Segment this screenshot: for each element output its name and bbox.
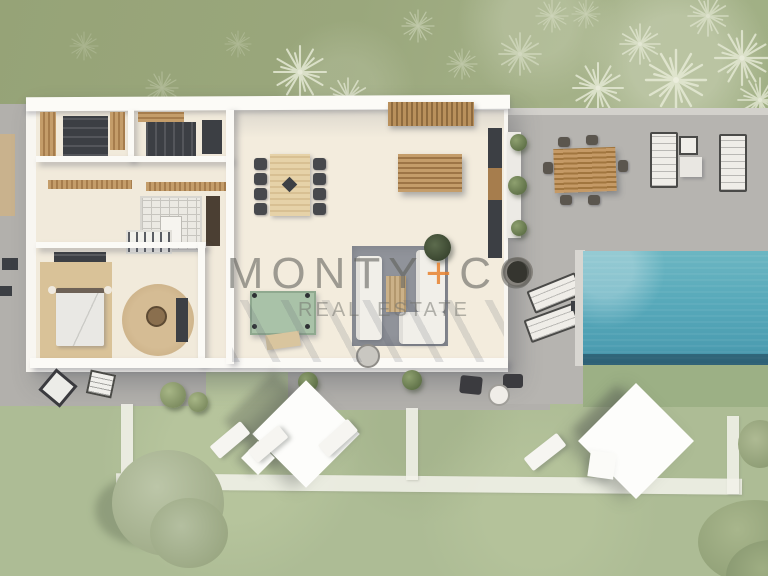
walkway-tree: [188, 392, 208, 412]
kitchen-island: [398, 154, 462, 192]
glass-wall-shadows: [232, 300, 504, 362]
dining-chair: [254, 188, 267, 200]
dining-chair: [313, 158, 326, 170]
garden-path-vertical: [727, 416, 739, 494]
bed-guest-1: [63, 116, 108, 156]
bed-master: [56, 288, 104, 346]
closet-topleft: [40, 112, 56, 160]
pool-deep-edge: [583, 354, 768, 365]
outdoor-chair: [558, 137, 570, 147]
terrace-bush: [508, 176, 527, 195]
dining-chair: [254, 158, 267, 170]
billiard-pocket: [252, 293, 257, 298]
wall-bedrooms-south: [36, 156, 232, 162]
outdoor-chair: [586, 135, 598, 145]
walkway-tree: [160, 382, 186, 408]
driveway-bench: [2, 258, 18, 270]
outdoor-chair: [588, 195, 600, 205]
swimming-pool: [583, 251, 768, 365]
dining-chair: [254, 203, 267, 215]
sun-lounger-terrace: [650, 132, 678, 188]
driveway-bench-2: [0, 286, 12, 296]
nightstand-right: [104, 286, 112, 294]
sun-lounger-terrace: [719, 134, 747, 192]
desk-office: [176, 298, 188, 342]
aerial-villa-floorplan: MONTY+CO REAL ESTATE: [0, 0, 768, 576]
side-table-small: [679, 136, 698, 155]
terrace-round-table: [488, 384, 510, 406]
wardrobe-guest-1: [110, 112, 125, 150]
terrace-top-edge: [503, 108, 768, 115]
side-table-square: [680, 157, 702, 177]
wall-bedrooms-divider: [128, 110, 134, 160]
garden-path-vertical: [406, 408, 418, 480]
driveway-rug: [0, 134, 15, 216]
lounge-chair-dark: [459, 375, 483, 395]
pergola: [388, 102, 474, 126]
billiard-pocket: [305, 293, 310, 298]
hall-console-2: [146, 182, 230, 191]
shade-sail-tail: [587, 450, 616, 479]
patio-chair-square: [86, 370, 116, 399]
garden-tree-large-lobe: [150, 498, 228, 568]
indoor-plant: [424, 234, 451, 261]
wardrobe-guest-2: [202, 120, 222, 154]
outdoor-chair: [618, 160, 628, 172]
wall-master-east: [198, 242, 205, 364]
fire-pit: [503, 257, 533, 287]
chair-office: [146, 306, 167, 327]
bed-guest-2: [146, 122, 196, 156]
dining-chair: [254, 173, 267, 185]
walkway-bush: [402, 370, 422, 390]
wall-master-north: [36, 242, 206, 248]
hall-console: [48, 180, 132, 189]
kitchen-tall-units: [488, 128, 502, 258]
nightstand-left: [48, 286, 56, 294]
terrace-bush: [510, 134, 527, 151]
outdoor-chair: [543, 162, 553, 174]
dining-chair: [313, 203, 326, 215]
terrace-bush: [511, 220, 527, 236]
headboard-guest-2: [138, 112, 184, 122]
stair-cabinet: [206, 196, 220, 246]
outdoor-chair: [560, 195, 572, 205]
dining-chair: [313, 188, 326, 200]
outdoor-dining-table: [553, 147, 616, 193]
dining-chair: [313, 173, 326, 185]
